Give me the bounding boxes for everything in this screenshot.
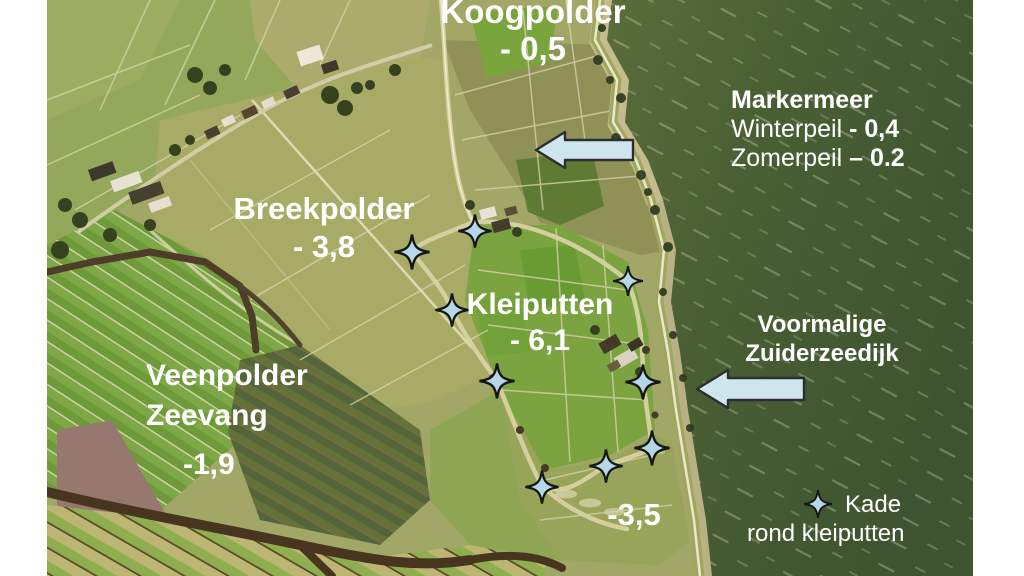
left-margin bbox=[0, 0, 47, 576]
legend-rond-kleiputten-text: rond kleiputten bbox=[747, 520, 904, 547]
summer-value: – 0.2 bbox=[849, 144, 905, 172]
koogpolder-name: Koogpolder bbox=[440, 0, 625, 30]
label-koogpolder: Koogpolder - 0,5 bbox=[440, 0, 625, 67]
kleiputten-value: - 6,1 bbox=[467, 323, 614, 359]
kade-star-icon bbox=[635, 431, 670, 466]
kade-star-icon bbox=[458, 214, 491, 247]
winter-label: Winterpeil bbox=[731, 115, 842, 143]
kade-star-icon bbox=[525, 470, 558, 503]
kade-star-icon bbox=[623, 362, 663, 402]
label-markermeer: Markermeer Winterpeil - 0,4 Zomerpeil – … bbox=[731, 86, 905, 173]
kade-star-icon bbox=[613, 266, 643, 296]
flow-arrow-icon bbox=[535, 131, 635, 169]
legend-kade-text: Kade bbox=[845, 491, 901, 518]
legend-line1: Kade bbox=[845, 490, 901, 519]
legend-star-icon bbox=[802, 488, 834, 520]
kleiputten-name: Kleiputten bbox=[467, 287, 614, 323]
flow-arrow-icon bbox=[696, 369, 806, 409]
kade-star-icon bbox=[632, 428, 672, 468]
breekpolder-value: - 3,8 bbox=[234, 228, 415, 266]
summer-label: Zomerpeil bbox=[731, 144, 842, 172]
label-zuiderzeedijk: Voormalige Zuiderzeedijk bbox=[745, 310, 898, 368]
legend-star-icon bbox=[804, 490, 832, 518]
kade-star-icon bbox=[589, 449, 622, 482]
kade-star-icon bbox=[611, 264, 645, 298]
label-breekpolder: Breekpolder - 3,8 bbox=[234, 190, 415, 266]
kade-star-icon bbox=[433, 291, 471, 329]
markermeer-summer: Zomerpeil – 0.2 bbox=[731, 144, 905, 173]
koogpolder-value: - 0,5 bbox=[440, 30, 625, 67]
flow-arrow-icon bbox=[697, 370, 804, 408]
veenpolder-name-line2: Zeevang bbox=[146, 396, 308, 436]
kade-star-icon bbox=[477, 361, 517, 401]
breekpolder-name: Breekpolder bbox=[234, 190, 415, 228]
kade-star-icon bbox=[626, 365, 661, 400]
kade-star-icon bbox=[435, 293, 468, 326]
aerial-map-slide: Koogpolder - 0,5 Markermeer Winterpeil -… bbox=[0, 0, 1024, 576]
label-veenpolder: Veenpolder Zeevang -1,9 bbox=[146, 356, 308, 485]
markermeer-winter: Winterpeil - 0,4 bbox=[731, 115, 905, 144]
markermeer-title: Markermeer bbox=[731, 86, 905, 115]
veenpolder-name-line1: Veenpolder bbox=[146, 356, 308, 396]
kade-star-icon bbox=[523, 468, 561, 506]
legend-line2: rond kleiputten bbox=[747, 519, 904, 548]
flow-arrow-icon bbox=[536, 132, 633, 168]
kade-star-icon bbox=[480, 364, 515, 399]
right-margin bbox=[973, 0, 1024, 576]
winter-value: - 0,4 bbox=[849, 115, 899, 143]
zuiderzeedijk-line1: Voormalige bbox=[745, 310, 898, 339]
kade-star-icon bbox=[587, 447, 625, 485]
label-kleiputten: Kleiputten - 6,1 bbox=[467, 287, 614, 359]
south-area-value: -3,5 bbox=[607, 496, 660, 534]
zuiderzeedijk-line2: Zuiderzeedijk bbox=[745, 339, 898, 368]
label-south-value: -3,5 bbox=[607, 496, 660, 534]
veenpolder-value: -1,9 bbox=[183, 445, 308, 485]
kade-star-icon bbox=[456, 212, 494, 250]
